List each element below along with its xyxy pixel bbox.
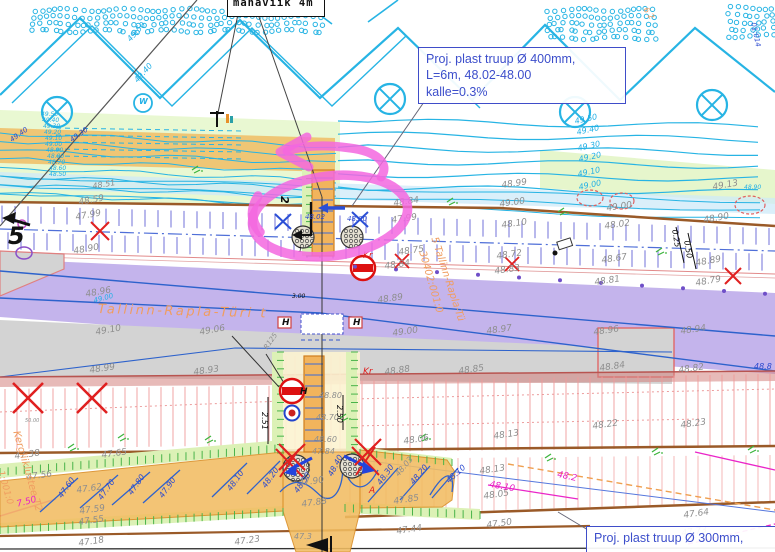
cad-site-plan: 48.5947.9948.9048.9649.1049.0648.9948.93…	[0, 0, 775, 552]
vegetation-clusters	[30, 4, 775, 41]
parcel-rect	[598, 328, 674, 377]
proposed-culvert-south	[304, 356, 324, 452]
guardrail-band	[0, 202, 775, 272]
outlet-label-box: mahaviik 4m	[227, 0, 325, 17]
callout-pipe-300: Proj. plast truup Ø 300mm,	[586, 526, 775, 552]
callout-line: Proj. plast truup Ø 300mm,	[594, 530, 775, 546]
outlet-label: mahaviik 4m	[233, 0, 314, 9]
bus-stop-sign	[349, 317, 362, 328]
callout-line: L=6m, 48.02-48.00	[426, 67, 618, 83]
callout-line: kalle=0.3%	[426, 84, 618, 100]
well-symbol	[134, 94, 152, 112]
site-plan-canvas	[0, 0, 775, 552]
proposed-culvert-north	[312, 170, 334, 256]
traffic-island	[301, 314, 343, 334]
bus-stop-sign	[278, 317, 291, 328]
callout-pipe-400: Proj. plast truup Ø 400mm, L=6m, 48.02-4…	[418, 47, 626, 104]
callout-line: Proj. plast truup Ø 400mm,	[426, 51, 618, 67]
road-surfaces	[0, 251, 775, 387]
